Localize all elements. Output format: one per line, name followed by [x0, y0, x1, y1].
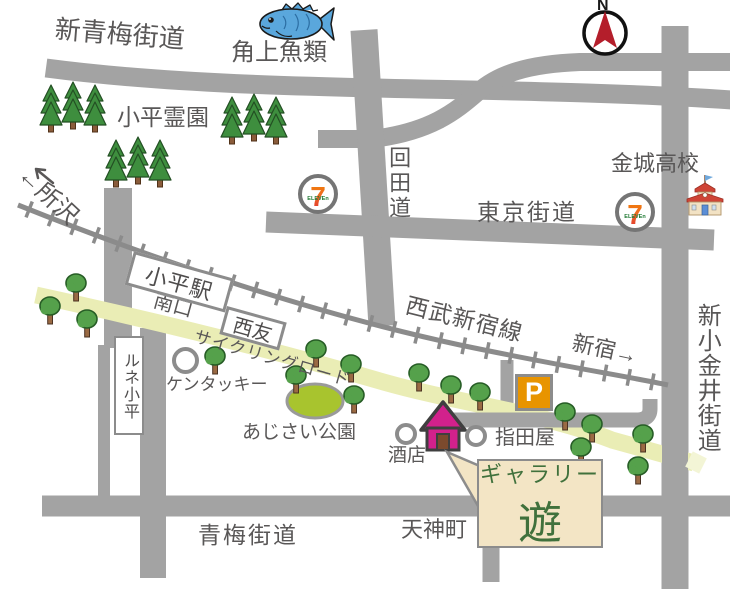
fish-icon	[260, 3, 334, 40]
lune-kodaira-label: ルネ小平	[117, 352, 141, 420]
place-label-cemetery: 小平霊園	[117, 105, 209, 129]
gallery-callout: ギャラリー 遊	[477, 459, 603, 548]
gallery-name-line2: 遊	[518, 487, 562, 551]
conifer-tree-icon	[84, 85, 106, 132]
conifer-tree-icon	[105, 140, 127, 187]
place-label-fish-market: 角上魚類	[231, 40, 327, 65]
road-label-shin-koganei: 新小金井街道	[694, 303, 719, 453]
parking-label: P	[525, 377, 543, 408]
road-over-band-patch	[662, 438, 688, 476]
gallery-name-line1: ギャラリー	[480, 457, 600, 489]
compass-icon	[584, 11, 626, 54]
road-label-tokyo: 東京街道	[477, 200, 577, 224]
road-shin-oume-kaido	[46, 68, 730, 100]
conifer-tree-icon	[40, 85, 62, 132]
road-label-oume: 青梅街道	[198, 523, 298, 547]
seven-eleven-icon: 7 ELEVEn	[617, 194, 653, 230]
place-label-sashidaya: 指田屋	[495, 428, 555, 449]
place-label-sake: 酒店	[388, 446, 426, 466]
compass-north-label: N	[597, 0, 609, 15]
gallery-house-icon	[421, 402, 465, 450]
cycling-road-band-end	[689, 459, 703, 466]
conifer-tree-icon	[62, 82, 84, 129]
lune-kodaira-box: ルネ小平	[114, 336, 144, 435]
conifer-tree-icon	[265, 97, 287, 144]
school-icon	[687, 175, 723, 215]
conifer-tree-icon	[149, 140, 171, 187]
eleven-glyph: ELEVEn	[624, 214, 646, 220]
conifer-tree-icon	[243, 94, 265, 141]
conifer-tree-icon	[127, 137, 149, 184]
kfc-marker-circle	[172, 347, 199, 374]
hand-drawn-access-map: 7 ELEVEn 7 ELEVEn	[0, 0, 730, 589]
seven-eleven-icon: 7 ELEVEn	[300, 176, 336, 212]
sake-shop-marker-circle	[395, 423, 417, 445]
map-graphics-layer: 7 ELEVEn 7 ELEVEn	[0, 0, 730, 589]
place-label-tenjincho: 天神町	[401, 518, 467, 541]
road-label-mawarida: 回田道	[387, 146, 410, 221]
sashidaya-marker-circle	[465, 425, 487, 447]
conifer-tree-icon	[221, 97, 243, 144]
round-tree-icon	[628, 457, 648, 484]
road-mawarida	[364, 30, 382, 326]
place-label-kfc: ケンタッキー	[166, 376, 268, 394]
place-label-high-school: 金城高校	[611, 152, 699, 175]
eleven-glyph: ELEVEn	[307, 196, 329, 202]
place-label-park: あじさい公園	[242, 423, 356, 443]
round-tree-icon	[344, 386, 364, 413]
round-tree-icon	[77, 310, 97, 337]
round-tree-icon	[40, 297, 60, 324]
parking-sign: P	[515, 374, 553, 411]
